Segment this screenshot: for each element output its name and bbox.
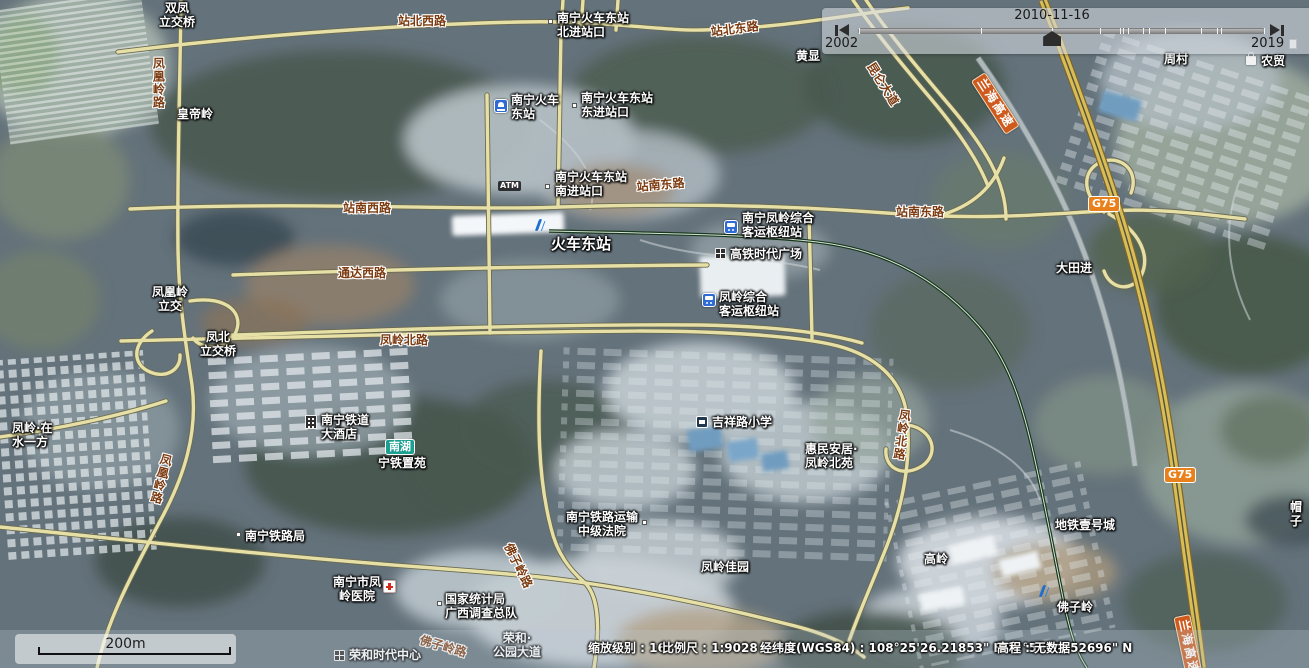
zoom-level-label: 缩放级别 : 16 [588,639,666,656]
timeline-tick [859,28,860,34]
timeline-tick [1100,28,1101,34]
map-scale-label: 比例尺 : 1:9028 [662,639,758,656]
timeline-tick [1221,28,1222,34]
timeline-current-date: 2010-11-16 [992,8,1112,23]
timeline-tick [1217,28,1218,34]
coordinates-label: 经纬度(WGS84) : 108°25'26.21853" E 22°50'49… [760,639,1132,656]
timeline-tick [1165,28,1166,34]
timeline-tick [1149,28,1150,34]
elevation-label: 高程 : 无数据 [997,639,1070,656]
timeline-end-year: 2019 [1251,36,1284,51]
scale-bar-line [38,647,231,655]
map-viewport[interactable]: 双凤 立交桥皇帝岭南宁火车东站 北进站口黄显周村农贸南宁火车 东站南宁火车东站 … [0,0,1309,668]
map-scale-bar: 200m [15,634,236,664]
timeline-start-year: 2002 [825,36,858,51]
timeline-tick [1128,28,1129,34]
timeline-tick [1264,28,1265,34]
timeline-tick [1201,28,1202,34]
timeline-panel: 2010-11-16 2002 2019 [822,8,1309,54]
timeline-tick [1143,28,1144,34]
satellite-imagery [0,0,1309,668]
timeline-track[interactable] [858,28,1265,34]
timeline-tick [981,28,982,34]
timeline-tick [1120,28,1121,34]
timeline-tick [1123,28,1124,34]
